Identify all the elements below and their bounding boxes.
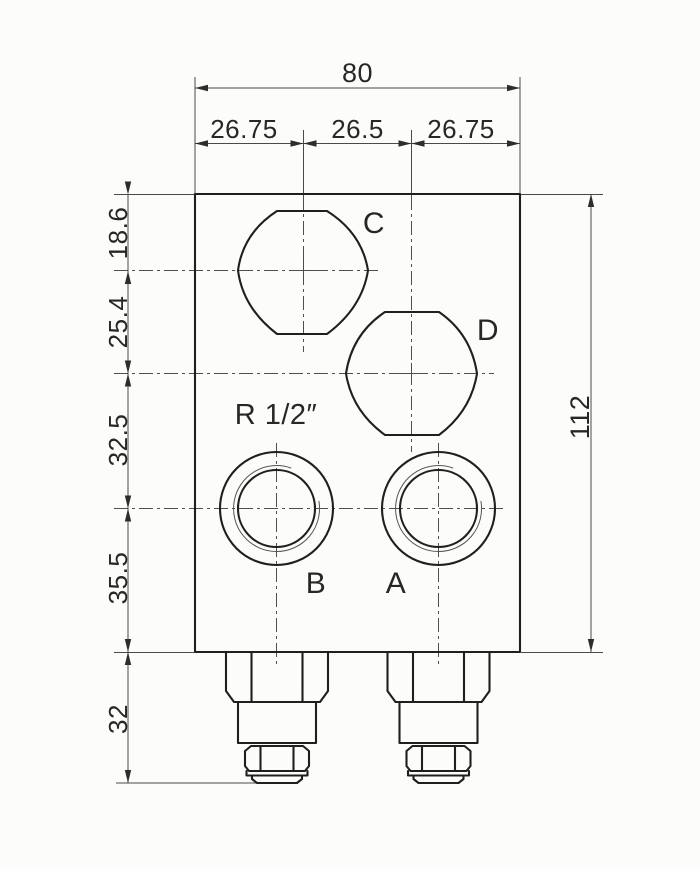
dim-label-top-segment-3: 26.75 [427, 114, 495, 144]
port-label-d: D [477, 314, 499, 347]
port-label-b: B [306, 567, 327, 600]
dim-label-left-segment-5: 32 [103, 704, 133, 734]
fitting-port-b [226, 652, 328, 783]
extension-lines [114, 77, 603, 783]
dim-label-left-segment-4: 35.5 [103, 552, 133, 605]
dim-label-left-segment-1: 18.6 [103, 207, 133, 260]
dim-label-overall-width: 80 [342, 58, 373, 88]
thread-size-label: R 1/2″ [235, 399, 318, 431]
dim-label-left-segment-2: 25.4 [103, 296, 133, 349]
technical-drawing: 80 26.75 26.5 26.75 18.6 25.4 32.5 35.5 … [0, 0, 700, 869]
port-label-c: C [363, 207, 385, 240]
dim-label-left-segment-3: 32.5 [103, 414, 133, 467]
dim-label-overall-height: 112 [565, 395, 595, 440]
dim-label-top-segment-2: 26.5 [331, 114, 384, 144]
drawing-sheet: 80 26.75 26.5 26.75 18.6 25.4 32.5 35.5 … [0, 0, 700, 869]
dim-label-top-segment-1: 26.75 [210, 114, 278, 144]
port-label-a: A [386, 567, 407, 600]
dimension-lines [128, 88, 591, 783]
fitting-port-a [388, 652, 490, 783]
port-a [382, 452, 495, 565]
